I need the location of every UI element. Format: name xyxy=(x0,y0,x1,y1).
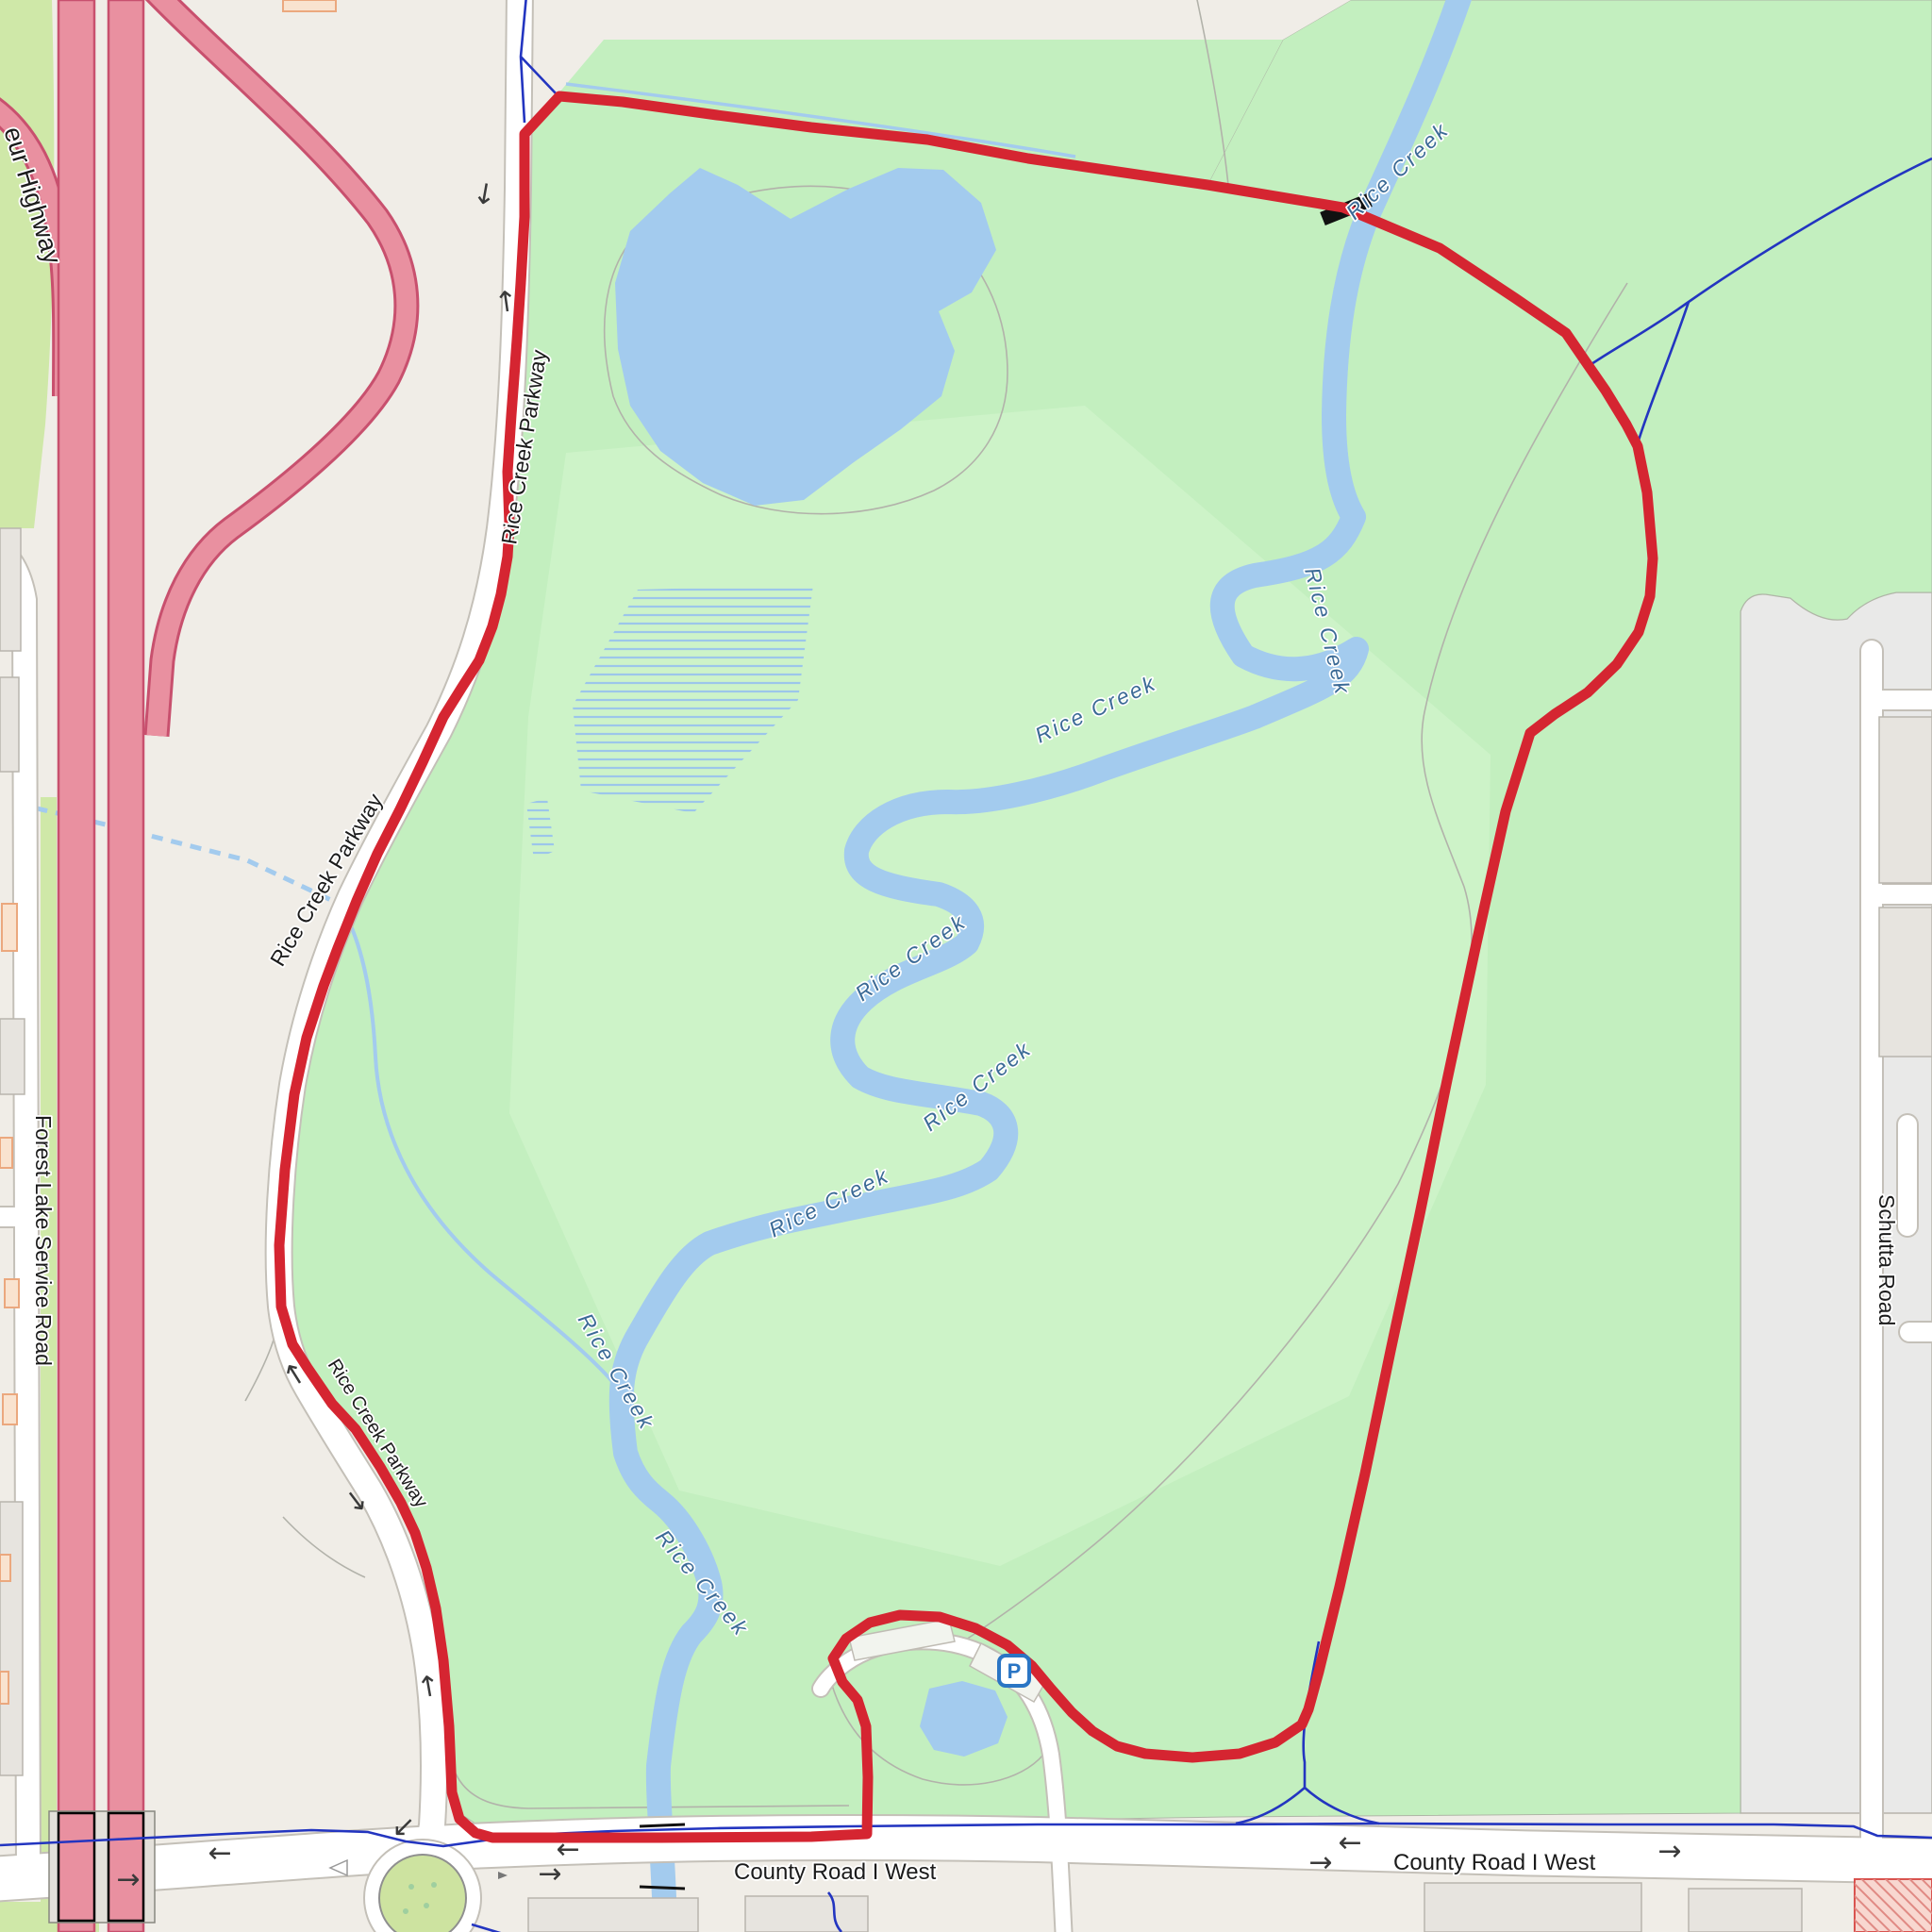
street-label: Schutta Road xyxy=(1874,1194,1899,1325)
oneway-arrow-icon: → xyxy=(116,1863,140,1896)
oneway-arrow-icon: ↑ xyxy=(492,285,521,321)
oneway-arrow-icon: ← xyxy=(208,1837,231,1870)
construction-hatch xyxy=(1855,1879,1932,1932)
oneway-arrow-icon: ↘ xyxy=(341,1483,370,1519)
street-label: County Road I West xyxy=(1393,1850,1596,1875)
oneway-arrow-icon: ← xyxy=(1338,1826,1361,1859)
map-canvas[interactable]: P eur HighwayForest Lake Service RoadRic… xyxy=(0,0,1932,1932)
parking-glyph: P xyxy=(1008,1659,1022,1683)
oneway-arrow-icon: → xyxy=(1308,1846,1332,1879)
top-beige-strip xyxy=(528,0,1351,40)
map-svg: P eur HighwayForest Lake Service RoadRic… xyxy=(0,0,1932,1932)
parking-icon: P xyxy=(999,1656,1029,1686)
street-label: Forest Lake Service Road xyxy=(31,1115,56,1366)
oneway-arrow-icon: ↙ xyxy=(391,1810,415,1843)
oneway-arrow-icon: → xyxy=(538,1857,561,1890)
oneway-arrow-icon: → xyxy=(1657,1835,1681,1868)
street-label: County Road I West xyxy=(734,1859,937,1885)
